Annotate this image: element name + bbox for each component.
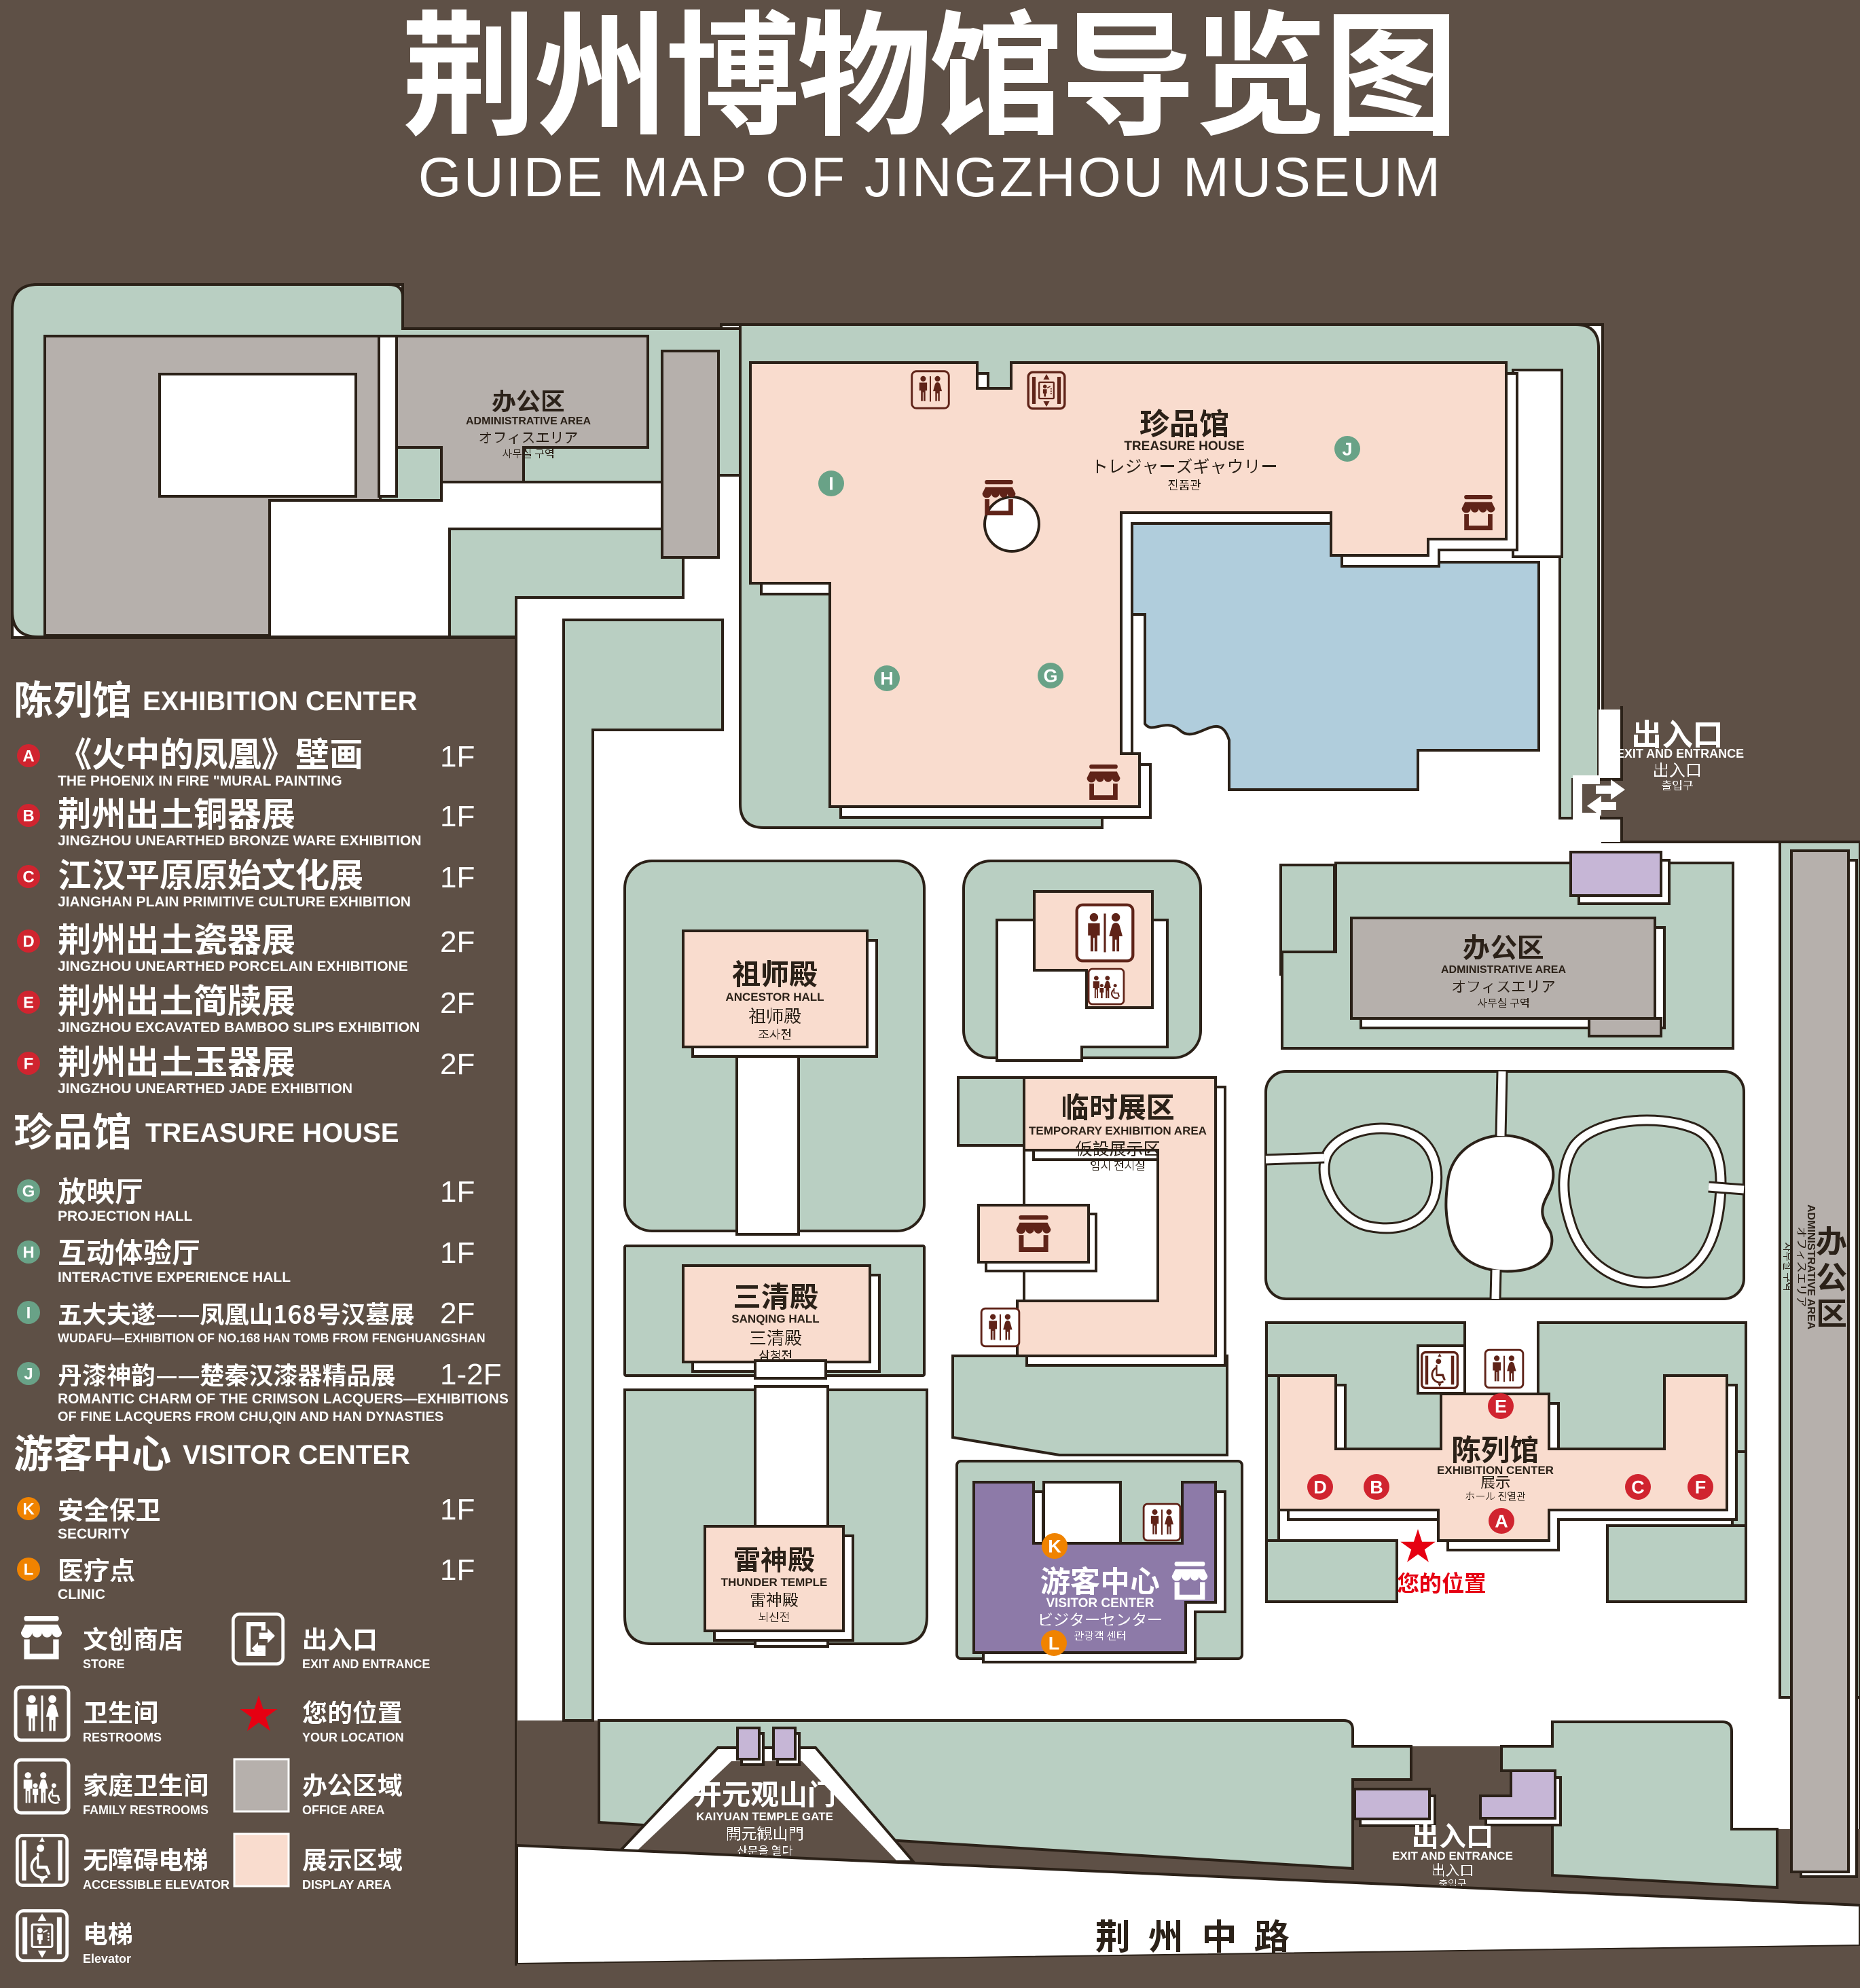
svg-text:Elevator: Elevator (83, 1952, 131, 1966)
svg-text:FAMILY RESTROOMS: FAMILY RESTROOMS (83, 1803, 208, 1817)
svg-text:1F: 1F (440, 861, 475, 894)
svg-text:2F: 2F (440, 925, 475, 959)
svg-text:1F: 1F (440, 1236, 475, 1270)
svg-text:ADMINISTRATIVE AREA: ADMINISTRATIVE AREA (1441, 964, 1566, 976)
svg-text:J: J (1342, 439, 1352, 460)
svg-text:VISITOR CENTER: VISITOR CENTER (1046, 1596, 1154, 1610)
svg-text:2F: 2F (440, 1297, 475, 1330)
svg-text:EXHIBITION CENTER: EXHIBITION CENTER (143, 686, 418, 716)
svg-text:JINGZHOU UNEARTHED PORCELAIN E: JINGZHOU UNEARTHED PORCELAIN EXHIBITIONE (58, 959, 408, 974)
svg-text:G: G (1043, 666, 1057, 686)
svg-text:ADMINISTRATIVE AREA: ADMINISTRATIVE AREA (466, 416, 591, 427)
svg-text:I: I (26, 1304, 31, 1323)
svg-text:ANCESTOR HALL: ANCESTOR HALL (725, 991, 824, 1004)
svg-text:JINGZHOU UNEARTHED BRONZE WARE: JINGZHOU UNEARTHED BRONZE WARE EXHIBITIO… (58, 833, 422, 849)
svg-text:KAIYUAN TEMPLE GATE: KAIYUAN TEMPLE GATE (696, 1810, 833, 1823)
svg-text:L: L (1048, 1634, 1060, 1654)
svg-text:K: K (1048, 1536, 1061, 1557)
svg-text:OFFICE AREA: OFFICE AREA (302, 1803, 384, 1817)
svg-text:EXIT AND ENTRANCE: EXIT AND ENTRANCE (1392, 1849, 1513, 1862)
svg-text:C: C (22, 868, 34, 887)
svg-text:SECURITY: SECURITY (58, 1526, 130, 1542)
svg-text:G: G (22, 1183, 35, 1201)
svg-text:ROMANTIC CHARM OF THE CRIMSON: ROMANTIC CHARM OF THE CRIMSON LACQUERS—E… (58, 1391, 509, 1407)
svg-text:OF FINE LACQUERS FROM CHU,QIN: OF FINE LACQUERS FROM CHU,QIN AND HAN DY… (58, 1410, 443, 1424)
svg-text:DISPLAY AREA: DISPLAY AREA (302, 1878, 391, 1892)
svg-text:C: C (1631, 1477, 1645, 1498)
svg-text:B: B (22, 807, 34, 826)
svg-text:1F: 1F (440, 740, 475, 773)
svg-text:WUDAFU—EXHIBITION OF NO.168 HA: WUDAFU—EXHIBITION OF NO.168 HAN TOMB FRO… (58, 1331, 486, 1345)
svg-text:2F: 2F (440, 1048, 475, 1081)
svg-text:1F: 1F (440, 800, 475, 833)
svg-text:EXHIBITION CENTER: EXHIBITION CENTER (1437, 1464, 1554, 1477)
svg-text:EXIT AND ENTRANCE: EXIT AND ENTRANCE (1616, 747, 1744, 760)
svg-text:E: E (23, 994, 34, 1012)
svg-text:ADMINISTRATIVE AREA: ADMINISTRATIVE AREA (1805, 1204, 1817, 1329)
svg-text:F: F (24, 1055, 34, 1073)
svg-text:TREASURE HOUSE: TREASURE HOUSE (145, 1118, 399, 1148)
svg-text:THUNDER TEMPLE: THUNDER TEMPLE (721, 1576, 828, 1589)
svg-text:TEMPORARY EXHIBITION AREA: TEMPORARY EXHIBITION AREA (1029, 1124, 1207, 1137)
svg-text:JIANGHAN PLAIN PRIMITIVE CULTU: JIANGHAN PLAIN PRIMITIVE CULTURE EXHIBIT… (58, 894, 411, 910)
svg-text:JINGZHOU UNEARTHED JADE EXHIBI: JINGZHOU UNEARTHED JADE EXHIBITION (58, 1081, 352, 1097)
svg-text:F: F (1695, 1477, 1707, 1498)
svg-text:H: H (880, 669, 894, 689)
svg-text:B: B (1370, 1477, 1383, 1498)
svg-text:D: D (22, 933, 34, 951)
svg-text:1F: 1F (440, 1493, 475, 1526)
svg-text:1F: 1F (440, 1553, 475, 1587)
svg-text:2F: 2F (440, 987, 475, 1020)
svg-text:INTERACTIVE EXPERIENCE HALL: INTERACTIVE EXPERIENCE HALL (58, 1270, 291, 1285)
svg-text:J: J (24, 1365, 33, 1384)
svg-text:PROJECTION HALL: PROJECTION HALL (58, 1209, 193, 1224)
svg-text:TREASURE HOUSE: TREASURE HOUSE (1124, 439, 1244, 454)
svg-text:STORE: STORE (83, 1657, 125, 1671)
svg-text:YOUR LOCATION: YOUR LOCATION (302, 1731, 404, 1744)
svg-text:GUIDE MAP OF JINGZHOU MUSEUM: GUIDE MAP OF JINGZHOU MUSEUM (418, 147, 1442, 208)
svg-text:1F: 1F (440, 1175, 475, 1209)
svg-text:VISITOR CENTER: VISITOR CENTER (183, 1440, 410, 1470)
svg-text:H: H (22, 1244, 34, 1262)
svg-text:1-2F: 1-2F (440, 1358, 501, 1391)
svg-text:A: A (1495, 1511, 1508, 1532)
svg-text:E: E (1495, 1397, 1507, 1417)
svg-text:D: D (1313, 1477, 1327, 1498)
svg-text:JINGZHOU EXCAVATED BAMBOO SLIP: JINGZHOU EXCAVATED BAMBOO SLIPS EXHIBITI… (58, 1020, 420, 1035)
svg-text:RESTROOMS: RESTROOMS (83, 1731, 162, 1744)
svg-text:ACCESSIBLE ELEVATOR: ACCESSIBLE ELEVATOR (83, 1878, 230, 1892)
svg-text:I: I (828, 474, 834, 494)
svg-text:SANQING HALL: SANQING HALL (731, 1312, 819, 1325)
svg-text:CLINIC: CLINIC (58, 1587, 105, 1602)
svg-text:A: A (22, 748, 34, 766)
svg-text:K: K (22, 1501, 35, 1519)
svg-text:THE PHOENIX IN FIRE "MURAL PAI: THE PHOENIX IN FIRE "MURAL PAINTING (58, 773, 342, 789)
svg-text:EXIT AND ENTRANCE: EXIT AND ENTRANCE (302, 1657, 430, 1671)
svg-text:L: L (24, 1561, 34, 1579)
